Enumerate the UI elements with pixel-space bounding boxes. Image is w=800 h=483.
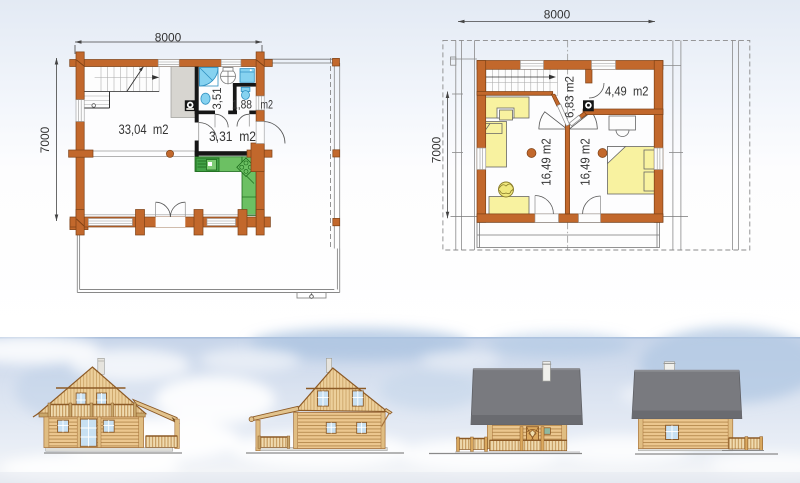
svg-text:7000: 7000 — [38, 126, 52, 153]
svg-text:6,83 m2: 6,83 m2 — [563, 76, 577, 118]
svg-text:m2: m2 — [261, 97, 274, 111]
svg-text:33,04 m2: 33,04 m2 — [119, 122, 169, 137]
svg-text:7000: 7000 — [430, 136, 444, 163]
svg-text:1,88: 1,88 — [232, 97, 252, 111]
svg-text:8000: 8000 — [544, 8, 571, 22]
svg-text:8000: 8000 — [155, 31, 182, 45]
svg-text:16,49 m2: 16,49 m2 — [579, 138, 593, 186]
svg-text:16,49 m2: 16,49 m2 — [540, 138, 554, 186]
svg-text:4,49 m2: 4,49 m2 — [605, 84, 649, 98]
svg-text:3,51: 3,51 — [210, 87, 224, 109]
svg-text:3,31 m2: 3,31 m2 — [209, 129, 256, 144]
